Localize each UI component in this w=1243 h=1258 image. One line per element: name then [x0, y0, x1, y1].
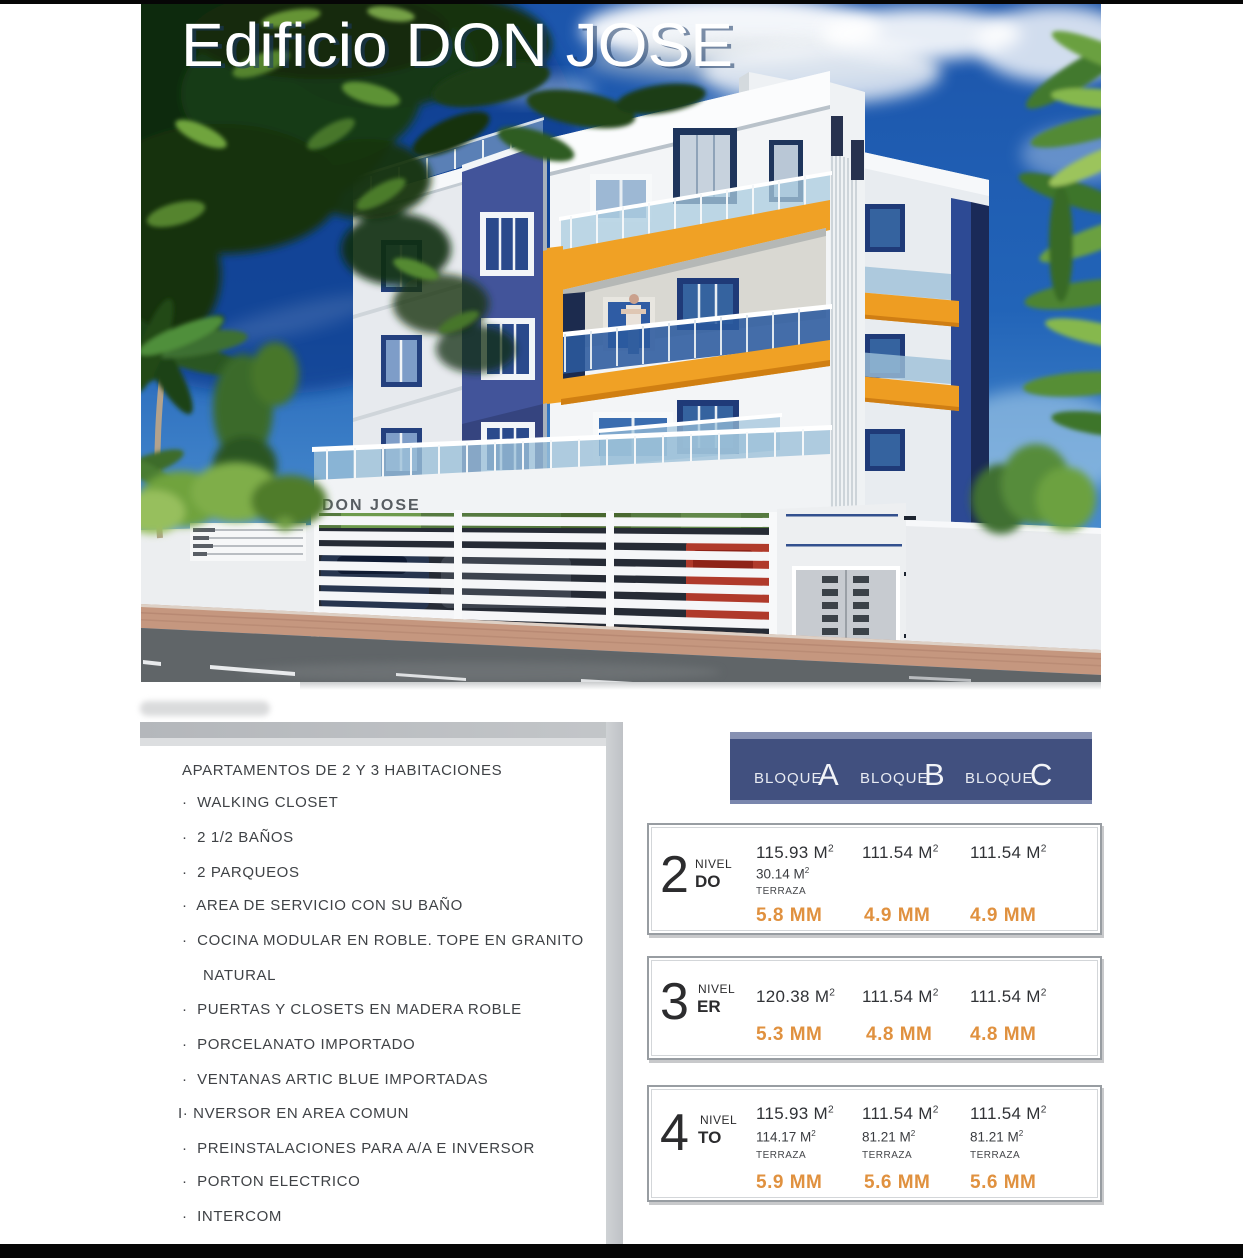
svg-text:Edificio DON JOSE: Edificio DON JOSE	[181, 11, 733, 79]
svg-text:DON JOSE: DON JOSE	[322, 497, 421, 514]
